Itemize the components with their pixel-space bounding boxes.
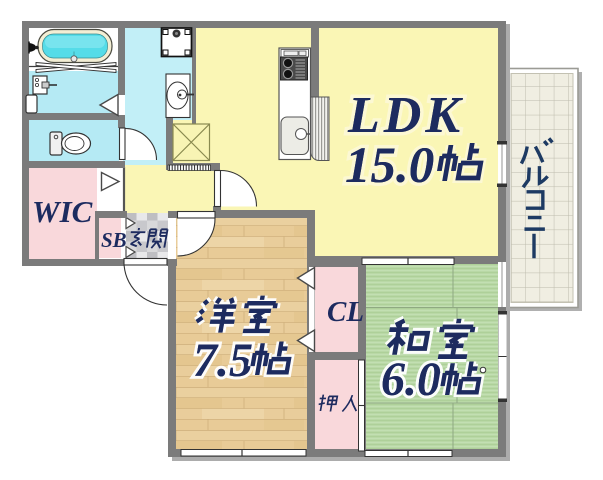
svg-text:LDK: LDK — [347, 87, 464, 144]
svg-text:7.5: 7.5 — [193, 334, 253, 387]
svg-text:WIC: WIC — [32, 194, 93, 229]
svg-text:15.0: 15.0 — [345, 138, 434, 194]
svg-text:6.0: 6.0 — [381, 353, 441, 406]
svg-text:CL: CL — [327, 296, 364, 328]
svg-text:SB: SB — [101, 228, 127, 252]
